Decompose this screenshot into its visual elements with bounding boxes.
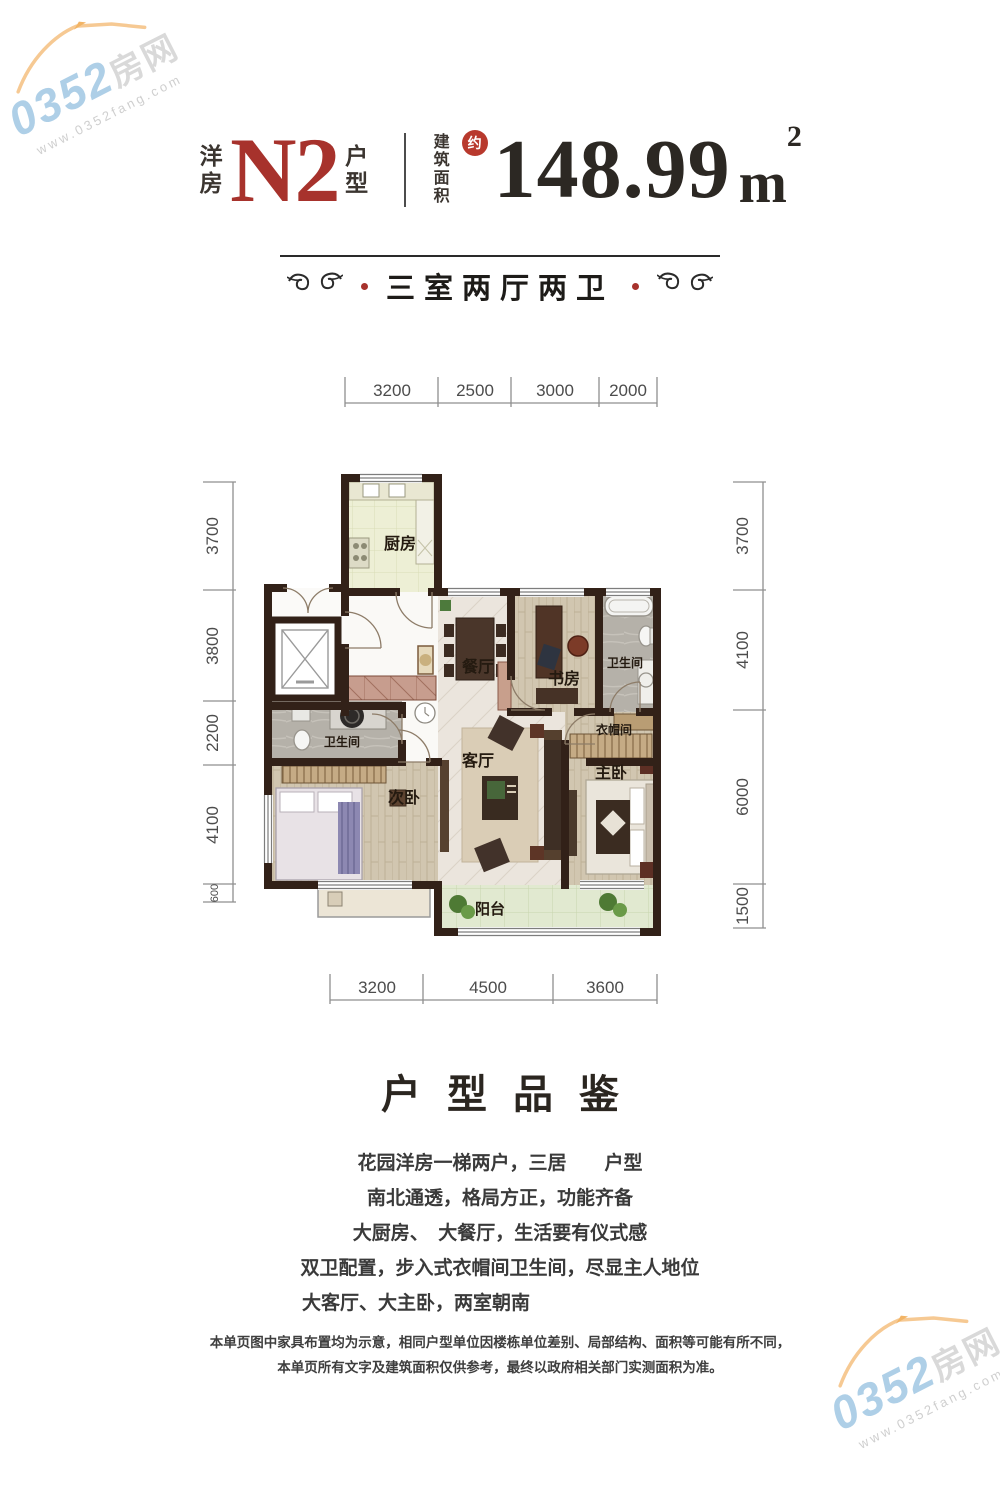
- dim-label: 3200: [373, 381, 411, 400]
- dimension-left-labels: 3700 3800 2200 4100 600: [203, 517, 222, 902]
- bay-ledge-box: [328, 892, 342, 906]
- section-line: 大客厅、大主卧，两室朝南: [290, 1286, 710, 1321]
- dimension-right-labels: 3700 4100 6000 1500: [733, 517, 752, 925]
- section-line: 南北通透，格局方正，功能齐备: [290, 1181, 710, 1216]
- disclaimer-line: 本单页所有文字及建筑面积仅供参考，最终以政府相关部门实测面积为准。: [180, 1355, 820, 1380]
- dim-label: 3200: [358, 978, 396, 997]
- dimension-top-labels: 3200 2500 3000 2000: [373, 381, 647, 400]
- elevator-shaft: [272, 620, 338, 698]
- dim-label: 4100: [203, 806, 222, 844]
- dim-label: 4500: [469, 978, 507, 997]
- dim-label: 600: [209, 884, 221, 902]
- dim-label: 1500: [733, 887, 752, 925]
- room-label-cloakroom: 衣帽间: [596, 722, 632, 737]
- disclaimer-line: 本单页图中家具布置均为示意，相同户型单位因楼栋单位差别、局部结构、面积等可能有所…: [180, 1330, 820, 1355]
- room-label-dining: 餐厅: [461, 657, 494, 676]
- room-label-bath-lower: 卫生间: [324, 734, 360, 749]
- dim-label: 3000: [536, 381, 574, 400]
- section-line: 双卫配置，步入式衣帽间卫生间，尽显主人地位: [290, 1251, 710, 1286]
- dim-label: 3800: [203, 627, 222, 665]
- room-label-study: 书房: [548, 669, 580, 688]
- dim-label: 2500: [456, 381, 494, 400]
- dim-label: 6000: [733, 778, 752, 816]
- room-label-bedroom2: 次卧: [388, 788, 420, 807]
- section-line: 花园洋房一梯两户，三居 户型: [290, 1146, 710, 1181]
- dim-label: 3700: [203, 517, 222, 555]
- dim-label: 2200: [203, 714, 222, 752]
- section-line: 大厨房、 大餐厅，生活要有仪式感: [290, 1216, 710, 1251]
- dim-label: 2000: [609, 381, 647, 400]
- section-body: 花园洋房一梯两户，三居 户型 南北通透，格局方正，功能齐备 大厨房、 大餐厅，生…: [290, 1146, 710, 1321]
- room-label-kitchen: 厨房: [384, 534, 416, 553]
- dim-label: 3700: [733, 517, 752, 555]
- room-label-master: 主卧: [595, 763, 627, 782]
- room-label-living: 客厅: [462, 751, 494, 770]
- dim-label: 3600: [586, 978, 624, 997]
- room-label-bath-upper: 卫生间: [607, 655, 643, 670]
- floorplan-page: { "watermark": { "number": "0352", "suff…: [0, 0, 1000, 1500]
- disclaimer: 本单页图中家具布置均为示意，相同户型单位因楼栋单位差别、局部结构、面积等可能有所…: [180, 1330, 820, 1380]
- dimension-bottom-labels: 3200 4500 3600: [358, 978, 624, 997]
- room-label-balcony: 阳台: [475, 900, 505, 918]
- section-title: 户型品鉴: [0, 1062, 1000, 1120]
- dim-label: 4100: [733, 631, 752, 669]
